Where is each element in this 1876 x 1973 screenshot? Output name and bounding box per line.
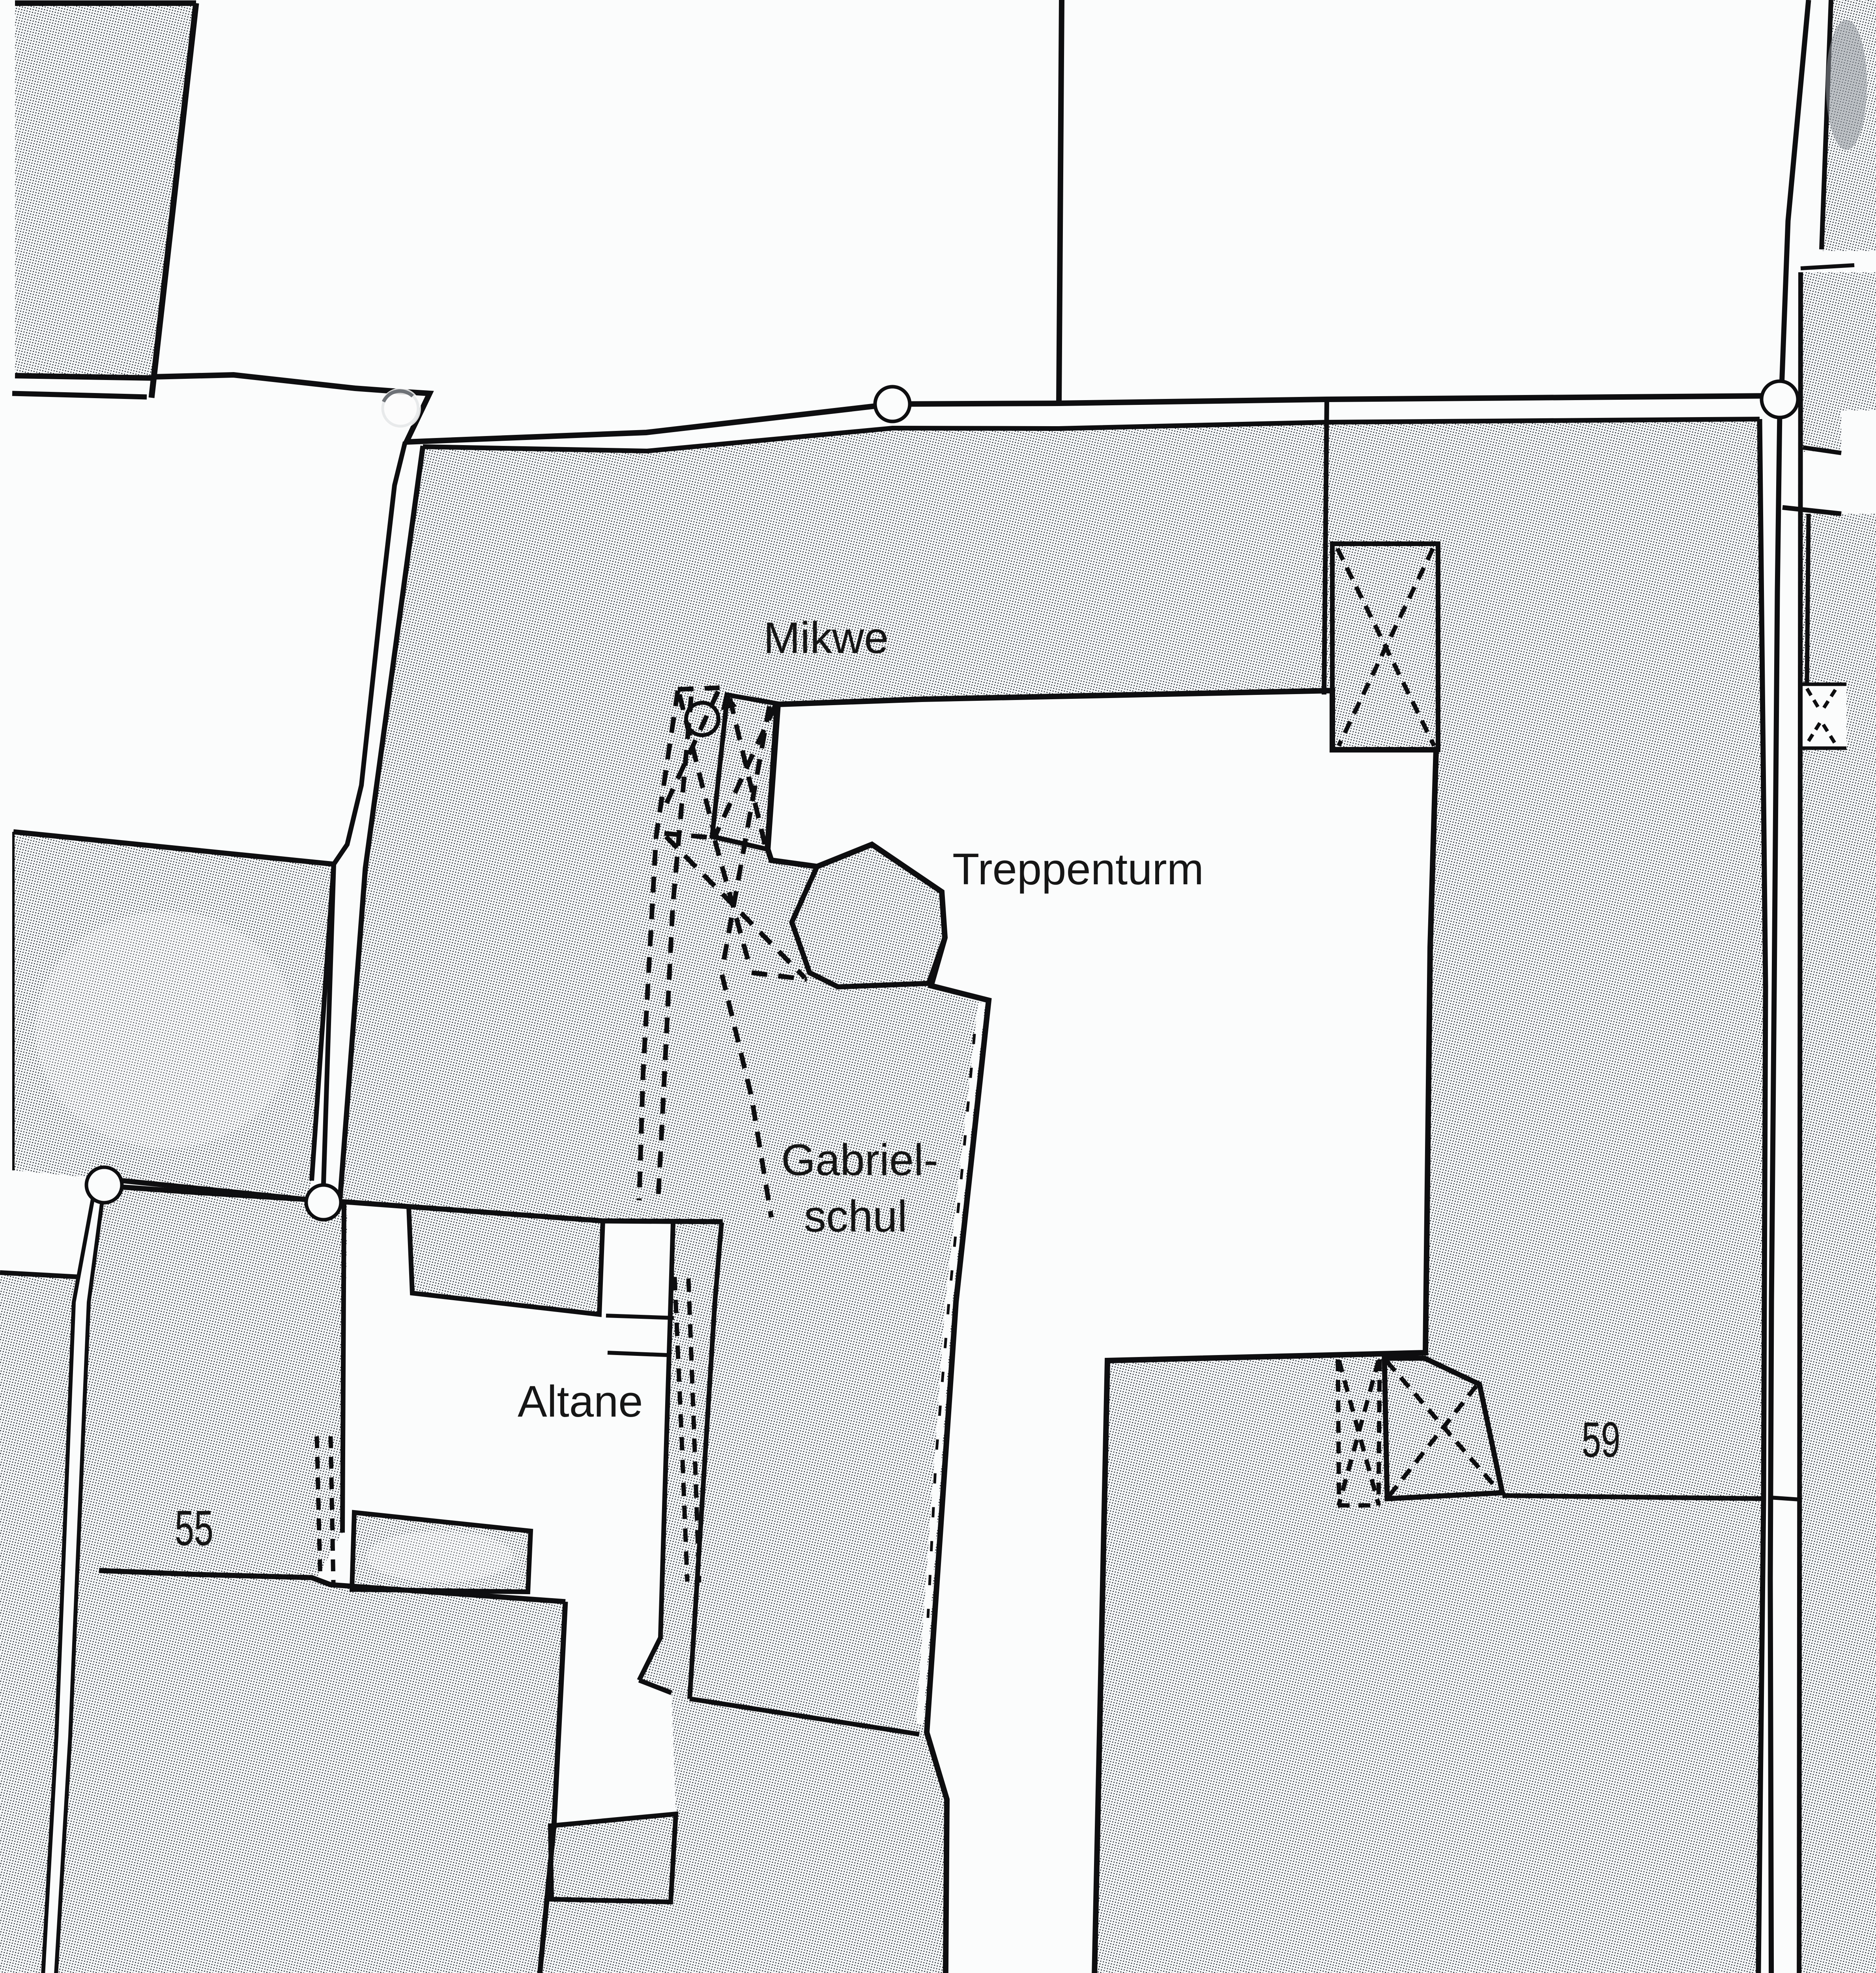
svg-text:Treppenturm: Treppenturm xyxy=(952,844,1204,894)
svg-text:Mikwe: Mikwe xyxy=(763,613,888,663)
svg-text:59: 59 xyxy=(1582,1413,1620,1468)
svg-text:Altane: Altane xyxy=(518,1377,643,1426)
svg-text:Gabriel-: Gabriel- xyxy=(781,1135,938,1185)
svg-text:schul: schul xyxy=(804,1192,907,1241)
svg-text:55: 55 xyxy=(175,1501,213,1556)
